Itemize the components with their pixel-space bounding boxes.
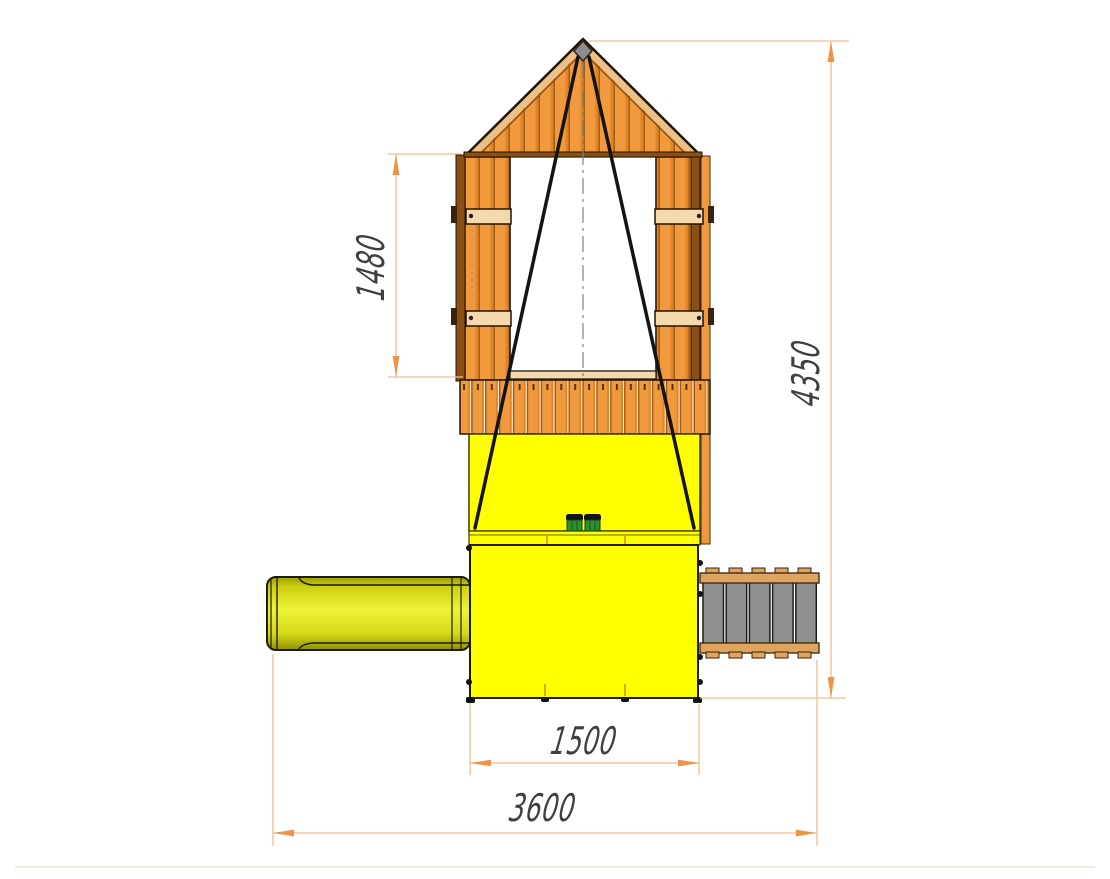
right-corner-post xyxy=(691,155,700,381)
left-corner-post xyxy=(456,155,465,381)
dim-1500 xyxy=(470,703,699,775)
platform-edge xyxy=(469,531,700,545)
climbing-ramp xyxy=(700,568,819,658)
dim-1480 xyxy=(388,154,463,377)
drawing-canvas: 1480 4350 1500 3600 xyxy=(0,0,1110,879)
lower-cabin xyxy=(466,545,703,703)
elevation-drawing xyxy=(0,0,1110,879)
slide xyxy=(267,577,470,650)
